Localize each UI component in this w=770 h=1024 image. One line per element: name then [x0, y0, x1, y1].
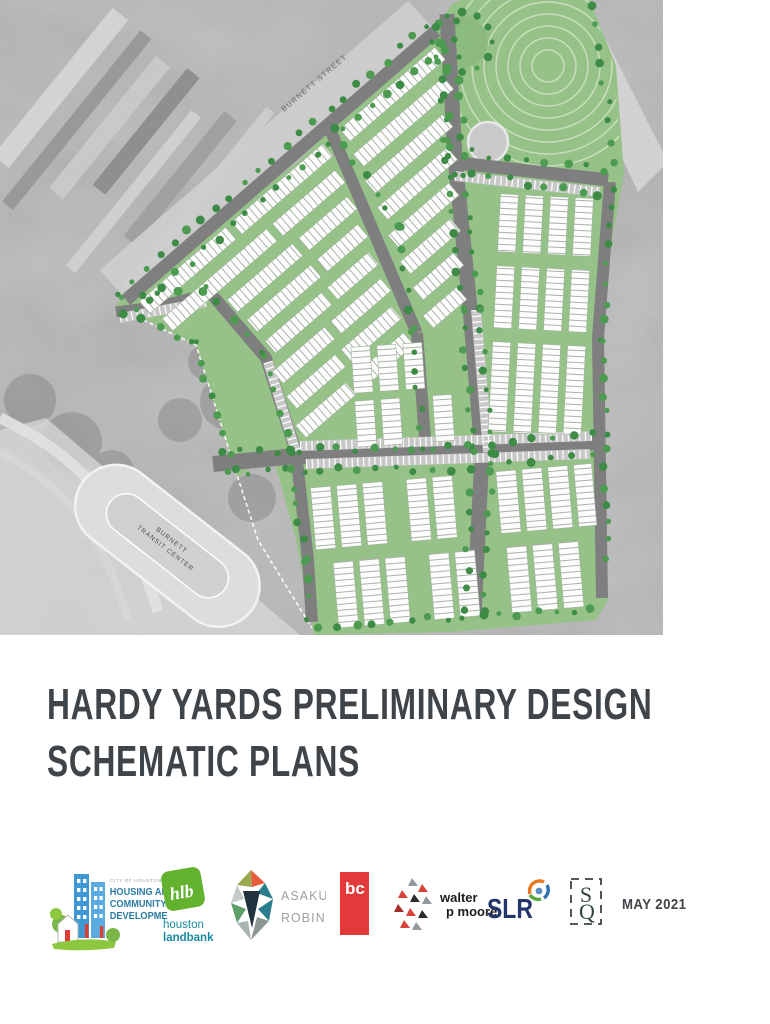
- bc-monogram: bc: [345, 879, 365, 898]
- asakura-line-1: ASAKURA: [281, 889, 326, 903]
- logo-asakura-robinson: ASAKURA ROBINSON: [224, 866, 326, 949]
- logo-sq-studio: S Q: [568, 872, 606, 937]
- publication-date: MAY 2021: [622, 896, 686, 913]
- sq-letter-q: Q: [579, 899, 595, 924]
- logo-city-of-houston-hcd: CITY OF HOUSTON HOUSING AND COMMUNITY DE…: [50, 862, 168, 963]
- landbank-monogram: hlb: [168, 880, 195, 904]
- logo-bc: bc: [340, 872, 369, 935]
- slr-globe-icon: [530, 881, 549, 899]
- coh-eyebrow: CITY OF HOUSTON: [110, 878, 162, 884]
- asakura-gem-icon: [231, 870, 273, 940]
- site-plan-svg: BURNETT TRANSIT CENTER BURNETT STREET EL…: [0, 0, 663, 635]
- page-title: HARDY YARDS PRELIMINARY DESIGN SCHEMATIC…: [47, 676, 770, 790]
- landbank-line-1: houston: [163, 919, 204, 931]
- wpm-line-1: walter: [439, 890, 478, 905]
- site-plan-cover-image: BURNETT TRANSIT CENTER BURNETT STREET EL…: [0, 0, 663, 635]
- logo-footer: CITY OF HOUSTON HOUSING AND COMMUNITY DE…: [0, 856, 770, 976]
- title-line-1: HARDY YARDS PRELIMINARY DESIGN: [47, 676, 652, 733]
- asakura-line-2: ROBINSON: [281, 911, 326, 925]
- wpm-triangles-icon: [394, 878, 432, 930]
- landbank-line-2: landbank: [163, 932, 214, 944]
- slr-text: SLR: [487, 894, 533, 925]
- logo-slr: SLR: [487, 878, 553, 933]
- logo-houston-landbank: hlb houston landbank: [156, 864, 218, 953]
- landbank-square-icon: hlb: [160, 866, 206, 912]
- title-line-2: SCHEMATIC PLANS: [47, 733, 652, 790]
